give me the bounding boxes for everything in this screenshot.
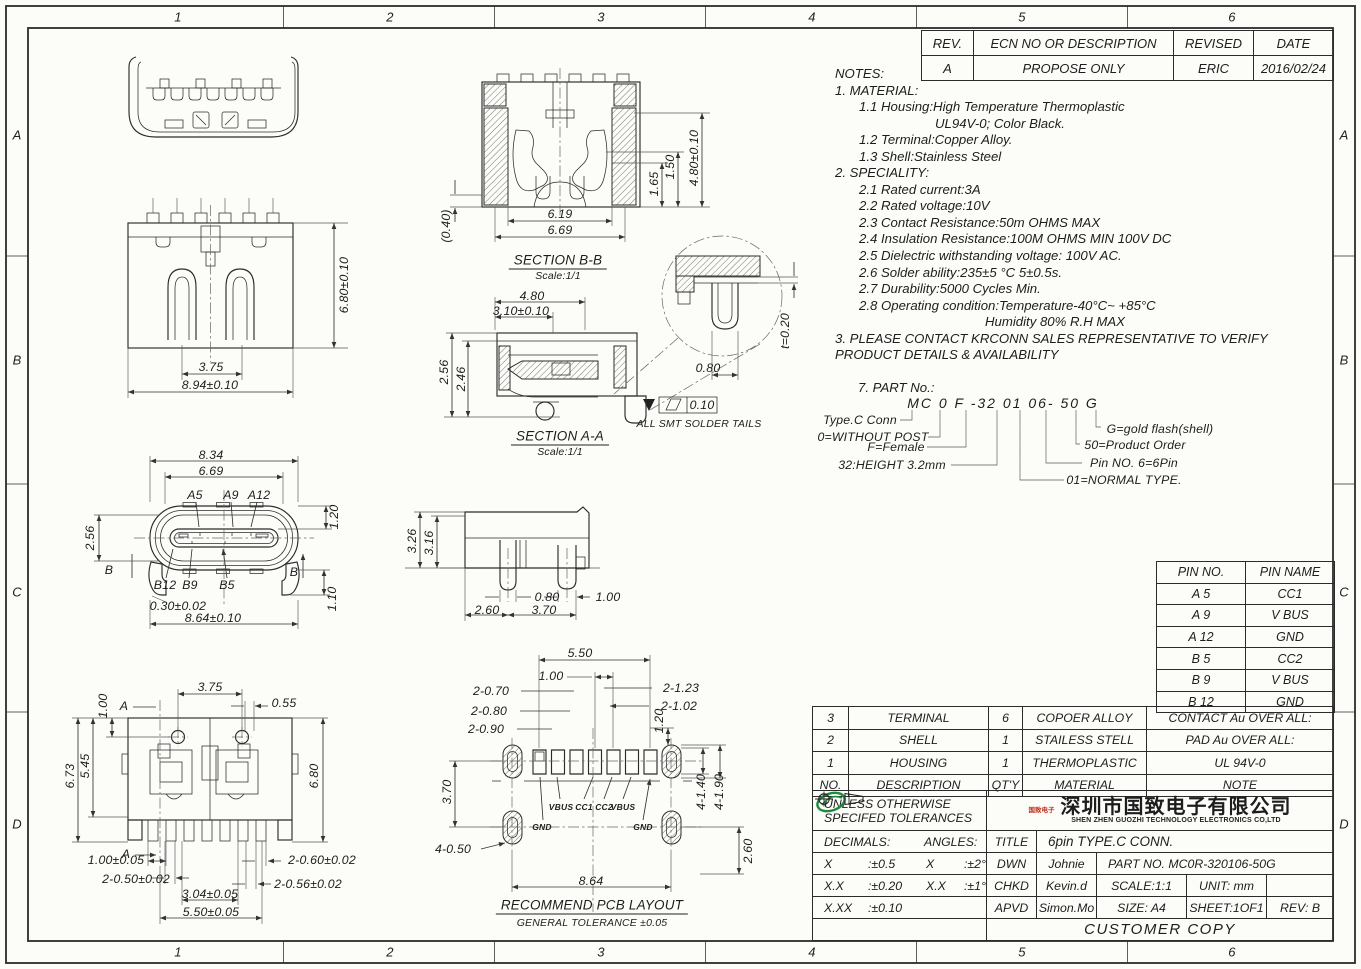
bom-cell: 3 [813,707,849,730]
company-name-en: SHEN ZHEN GUOZHI TECHNOLOGY ELECTRONICS … [1071,817,1281,824]
dim-label: 8.64 [579,874,604,888]
section-arrow-label: A [120,699,128,713]
pin-cell: CC1 [1246,583,1335,605]
dwn-value: Johnie [1037,853,1097,875]
pin-cell: B 5 [1157,648,1246,670]
pin-cell: V BUS [1246,669,1335,691]
dim-label: 6.80 [307,764,321,789]
tol-cell: :±0.10 [868,901,926,915]
dim-label: 6.69 [199,464,224,478]
scale-value: SCALE:1:1 [1097,875,1187,897]
part-no-callout: 01=NORMAL TYPE. [1066,473,1181,487]
rev-value: REV: B [1267,897,1334,919]
section-scale: Scale:1/1 [535,270,581,282]
dim-label: 2-1.02 [661,699,697,713]
dim-label: 1.50 [663,155,677,180]
dim-label: 1.00 [96,694,110,719]
dim-label: 0.80 [696,361,721,375]
dim-label: 3.75 [199,360,224,374]
pad-label: VBUS [611,802,635,812]
bom-table: 3TERMINAL6COPOER ALLOYCONTACT Au OVER AL… [812,706,1334,797]
decimals-label: DECIMALS: [824,835,924,849]
company-logo: 国致电子 [1029,808,1055,814]
tolerance-row: X :±0.5 X :±2° [813,853,987,875]
dim-label: 5.45 [78,754,92,779]
note-line: 1.3 Shell:Stainless Steel [835,149,1347,166]
dim-label: 2.46 [454,367,468,392]
pin-header: PIN NO. [1157,562,1246,584]
dwn-label: DWN [987,853,1037,875]
rev-header: DATE [1254,31,1334,56]
part-no-callout: Pin NO. 6=6Pin [1090,456,1178,470]
note-line: UL94V-0; Color Black. [835,116,1347,133]
note-line: 2.6 Solder ability:235±5 °C 5±0.5s. [835,265,1347,282]
customer-copy: CUSTOMER COPY [987,919,1334,941]
rev-header: REV. [922,31,974,56]
pin-header: PIN NAME [1246,562,1335,584]
dim-label: 3.70 [440,780,454,805]
grid-row-label: A [13,128,22,143]
chkd-label: CHKD [987,875,1037,897]
dim-label: 4-0.50 [435,842,471,856]
company-names: 深圳市国致电子有限公司 SHEN ZHEN GUOZHI TECHNOLOGY … [1061,797,1292,824]
pin-callout: B5 [219,578,234,592]
notes-block: NOTES: 1. MATERIAL: 1.1 Housing:High Tem… [835,66,1347,364]
apvd-value: Simon.Mo [1037,897,1097,919]
pin-callout: A9 [223,488,238,502]
dim-label: 1.65 [647,172,661,197]
dim-label: 8.64±0.10 [185,611,241,625]
dim-label: 1.20 [652,709,666,734]
tol-cell: :±1° [964,879,986,893]
note-line: 2.5 Dielectric withstanding voltage: 100… [835,248,1347,265]
tol-cell: :±0.20 [868,879,926,893]
pad-label: GND [633,822,653,832]
bom-cell: THERMOPLASTIC [1023,752,1147,775]
note-line: 2.3 Contact Resistance:50m OHMS MAX [835,215,1347,232]
section-caption: SECTION A-A [511,429,609,446]
dim-label: 8.34 [199,448,224,462]
bom-cell: CONTACT Au OVER ALL: [1147,707,1334,730]
grid-col-label: 2 [386,10,393,25]
part-no-heading: 7. PART No.: [858,380,934,395]
dim-label: 2.56 [437,360,451,385]
bom-cell: TERMINAL [849,707,989,730]
note-line: 2. SPECIALITY: [835,165,1347,182]
sheet-value: SHEET:1OF1 [1187,897,1267,919]
dim-label: 1.10 [325,587,339,612]
part-no-value: PART NO. MC0R-320106-50G [1097,853,1334,875]
pin-cell: B 9 [1157,669,1246,691]
pad-label: CC1 [575,802,593,812]
grid-row-label: C [12,585,22,600]
bom-cell: UL 94V-0 [1147,752,1334,775]
note-line: 2.2 Rated voltage:10V [835,198,1347,215]
dim-label: 2.60 [741,839,755,864]
dim-label: 0.80 [535,590,560,604]
pcb-caption: RECOMMEND PCB LAYOUT [496,898,688,915]
bom-cell: 1 [989,729,1023,752]
company-header: 国致电子 深圳市国致电子有限公司 SHEN ZHEN GUOZHI TECHNO… [987,791,1334,831]
grid-row-label: C [1339,585,1349,600]
note-line: 1.2 Terminal:Copper Alloy. [835,132,1347,149]
angles-label: ANGLES: [924,835,977,849]
dim-label: 3.04±0.05 [182,887,238,901]
note-line: Humidity 80% R.H MAX [835,314,1347,331]
pad-label: VBUS [549,802,573,812]
tolerance-headers: DECIMALS: ANGLES: [813,831,987,853]
pin-cell: CC2 [1246,648,1335,670]
size-value: SIZE: A4 [1097,897,1187,919]
view-back [128,198,348,398]
rev-header: REVISED [1174,31,1254,56]
grid-row-label: D [1339,817,1349,832]
note-line: 1.1 Housing:High Temperature Thermoplast… [835,99,1347,116]
note-line: NOTES: [835,66,1347,83]
bom-cell: PAD Au OVER ALL: [1147,729,1334,752]
note-line: 2.4 Insulation Resistance:100M OHMS MIN … [835,231,1347,248]
dim-label: 1.00 [539,669,564,683]
dim-label: 3.75 [198,680,223,694]
dim-label: 6.73 [63,764,77,789]
dim-label: 6.19 [548,207,573,221]
drawing-sheet: 1 2 3 4 5 6 1 2 3 4 5 6 A B C D A B C D … [0,0,1361,969]
grid-col-label: 2 [386,945,393,960]
title-value: 6pin TYPE.C CONN. [1037,831,1334,853]
tol-cell: X.X [926,879,964,893]
grid-col-label: 3 [597,10,604,25]
dim-label: 2-0.50±0.02 [102,872,170,886]
dim-label: 8.94±0.10 [182,378,238,392]
dim-label: 1.00±0.05 [88,853,144,867]
part-no-callout: 50=Product Order [1084,438,1185,452]
section-caption: SECTION B-B [509,253,607,270]
dim-label: 3.70 [532,603,557,617]
note-line: 2.8 Operating condition:Temperature-40°C… [835,298,1347,315]
tol-cell: X [926,857,964,871]
bom-cell: HOUSING [849,752,989,775]
dim-label: 2.60 [475,603,500,617]
dim-label: 2-0.80 [471,704,507,718]
smt-note: ALL SMT SOLDER TAILS [637,418,762,430]
company-name-cn: 深圳市国致电子有限公司 [1061,797,1292,817]
bom-cell: 1 [813,752,849,775]
tolerance-row: X.XX :±0.10 [813,897,987,919]
rev-header: ECN NO OR DESCRIPTION [974,31,1174,56]
dim-label: 5.50±0.05 [183,905,239,919]
bom-cell: COPOER ALLOY [1023,707,1147,730]
grid-col-label: 6 [1228,10,1235,25]
part-no-code: MC 0 F -32 01 06- 50 G [907,395,1099,411]
dim-label: 1.00 [596,590,621,604]
part-no-callout: F=Female [867,440,924,454]
bom-cell: STAILESS STELL [1023,729,1147,752]
flatness-value: 0.10 [690,398,715,412]
tol-cell: X.X [824,879,868,893]
pin-table: PIN NO.PIN NAME A 5CC1 A 9V BUS A 12GND … [1156,561,1335,713]
dim-label: 2-0.56±0.02 [274,877,342,891]
view-side [405,507,600,621]
dim-label: 2-0.90 [468,722,504,736]
view-front-face [94,456,332,629]
dim-label: 2-1.23 [663,681,699,695]
grid-row-label: B [13,353,22,368]
unit-value: UNIT: mm [1187,875,1267,897]
note-line: 3. PLEASE CONTACT KRCONN SALES REPRESENT… [835,331,1347,348]
pin-callout: B12 [154,578,176,592]
view-shell-face [129,57,298,137]
company-logo-text: 国致电子 [1029,808,1055,814]
grid-col-label: 3 [597,945,604,960]
pin-callout: A5 [187,488,202,502]
apvd-label: APVD [987,897,1037,919]
dim-label: (0.40) [439,209,453,242]
part-no-callout: Type.C Conn [823,413,897,427]
pad-label: GND [532,822,552,832]
dim-label: 0.55 [272,696,297,710]
pin-callout: B9 [182,578,197,592]
bom-cell: 6 [989,707,1023,730]
section-arrow-label: B [290,565,298,579]
title-label: TITLE [987,831,1037,853]
bom-cell: SHELL [849,729,989,752]
bom-cell: 2 [813,729,849,752]
grid-col-label: 1 [174,10,181,25]
grid-col-label: 4 [808,10,815,25]
dim-label: 2-0.60±0.02 [288,853,356,867]
dim-label: 3.16 [422,531,436,556]
section-arrow-label: B [105,563,113,577]
dim-label: 2.56 [83,526,97,551]
grid-col-label: 1 [174,945,181,960]
grid-col-label: 5 [1018,945,1025,960]
part-no-callout: 32:HEIGHT 3.2mm [838,458,946,472]
dim-label: 6.69 [548,223,573,237]
projection-symbol [1267,875,1334,897]
dim-label: 4.80 [520,289,545,303]
bom-cell: 1 [989,752,1023,775]
title-block: UNLESS OTHERWISE SPECIFED TOLERANCES 国致电… [812,790,1334,941]
note-line: 2.1 Rated current:3A [835,182,1347,199]
pin-cell: A 9 [1157,605,1246,627]
dim-label: 4-1.40 [694,774,708,810]
pin-cell: V BUS [1246,605,1335,627]
part-no-callout: G=gold flash(shell) [1107,422,1214,436]
pin-callout: A12 [248,488,270,502]
pin-cell: A 12 [1157,626,1246,648]
grid-col-label: 4 [808,945,815,960]
dim-label: 3.26 [405,529,419,554]
dim-label: 6.80±0.10 [337,257,351,313]
grid-col-label: 6 [1228,945,1235,960]
dim-label: t=0.20 [778,313,792,349]
note-line: 2.7 Durability:5000 Cycles Min. [835,281,1347,298]
grid-row-label: D [12,817,22,832]
dim-label: 4.80±0.10 [687,130,701,186]
dim-label: 4-1.90 [712,774,726,810]
pcb-tolerance: GENERAL TO­LERANCE ±0.05 [517,917,668,929]
note-line: 1. MATERIAL: [835,83,1347,100]
tol-cell: :±2° [964,857,986,871]
pin-cell: A 5 [1157,583,1246,605]
tol-cell: X.XX [824,901,868,915]
note-line: PRODUCT DETAILS & AVAILABILITY [835,347,1347,364]
empty-cell [813,919,987,941]
chkd-value: Kevin.d [1037,875,1097,897]
dim-label: 1.20 [327,505,341,530]
dim-label: 2-0.70 [473,684,509,698]
grid-col-label: 5 [1018,10,1025,25]
view-detail [614,236,798,413]
pin-cell: GND [1246,626,1335,648]
dim-label: 5.50 [568,646,593,660]
tol-cell: :±0.5 [868,857,926,871]
dim-label: 3.10±0.10 [493,304,549,318]
section-scale: Scale:1/1 [537,446,583,458]
tol-cell: X [824,857,868,871]
tolerance-row: X.X :±0.20 X.X :±1° [813,875,987,897]
